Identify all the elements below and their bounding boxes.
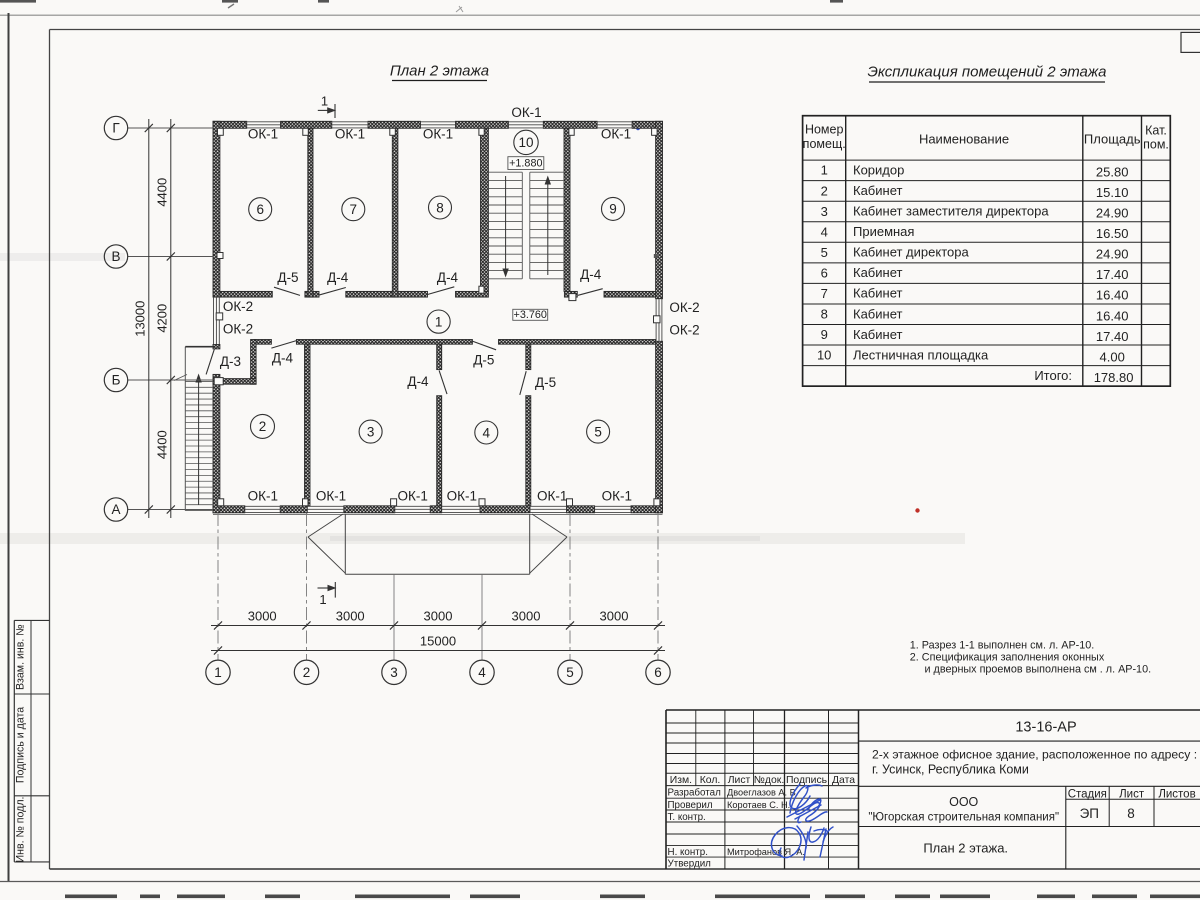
svg-text:4: 4	[478, 665, 486, 680]
svg-text:Кабинет: Кабинет	[853, 327, 902, 342]
svg-text:Д-4: Д-4	[437, 270, 459, 285]
svg-text:1: 1	[214, 665, 222, 680]
svg-text:5: 5	[594, 424, 602, 439]
svg-text:План 2 этажа: План 2 этажа	[390, 63, 489, 80]
svg-text:ОК-2: ОК-2	[669, 323, 699, 338]
svg-text:Кабинет: Кабинет	[853, 265, 902, 280]
svg-text:3000: 3000	[424, 609, 453, 624]
svg-text:Д-4: Д-4	[327, 270, 349, 285]
svg-text:№док.: №док.	[754, 775, 784, 786]
svg-text:Лист: Лист	[1119, 789, 1145, 801]
svg-text:ОК-1: ОК-1	[423, 127, 453, 142]
svg-text:Наименование: Наименование	[919, 132, 1009, 147]
svg-text:16.50: 16.50	[1096, 226, 1129, 241]
svg-text:Площадь: Площадь	[1084, 132, 1141, 147]
svg-text:ОК-1: ОК-1	[248, 489, 278, 504]
svg-text:Подпись и дата: Подпись и дата	[15, 707, 27, 783]
svg-text:пом.: пом.	[1143, 138, 1169, 152]
svg-text:4: 4	[483, 425, 491, 440]
svg-text:7: 7	[821, 286, 828, 301]
svg-text:Подпись: Подпись	[786, 775, 827, 786]
svg-text:8: 8	[436, 200, 444, 215]
svg-text:ОК-1: ОК-1	[398, 489, 428, 504]
svg-text:10: 10	[518, 135, 533, 150]
svg-text:Коридор: Коридор	[853, 162, 904, 177]
svg-text:ОК-2: ОК-2	[669, 300, 699, 315]
svg-text:Экспликация помещений 2 этажа: Экспликация помещений 2 этажа	[867, 64, 1106, 81]
svg-text:Н. контр.: Н. контр.	[668, 847, 708, 858]
svg-text:10: 10	[817, 348, 831, 363]
svg-text:+3.760: +3.760	[514, 309, 547, 321]
svg-text:1: 1	[321, 94, 328, 109]
svg-text:Г: Г	[112, 121, 120, 136]
svg-text:ОК-1: ОК-1	[537, 489, 567, 504]
svg-text:9: 9	[609, 202, 617, 217]
svg-text:План 2 этажа.: План 2 этажа.	[923, 841, 1008, 856]
svg-text:1: 1	[821, 163, 828, 178]
svg-text:Дата: Дата	[832, 775, 855, 786]
svg-text:13000: 13000	[132, 301, 147, 337]
svg-text:Кабинет: Кабинет	[853, 306, 902, 321]
svg-text:Д-5: Д-5	[277, 270, 298, 285]
svg-text:4200: 4200	[155, 304, 170, 333]
svg-text:5: 5	[821, 245, 828, 260]
svg-text:Приемная: Приемная	[853, 224, 914, 239]
svg-text:16.40: 16.40	[1096, 288, 1129, 303]
svg-text:1: 1	[319, 592, 326, 607]
svg-text:Д-3: Д-3	[220, 354, 241, 369]
svg-text:Итого:: Итого:	[1034, 368, 1072, 383]
svg-text:2-х этажное офисное здание, ра: 2-х этажное офисное здание, расположенно…	[872, 748, 1197, 762]
svg-text:А: А	[111, 502, 120, 517]
svg-text:3: 3	[367, 424, 375, 439]
svg-text:2: 2	[821, 183, 828, 198]
svg-text:Д-5: Д-5	[535, 375, 556, 390]
svg-text:Лестничная площадка: Лестничная площадка	[853, 347, 989, 362]
svg-text:Б: Б	[112, 373, 121, 388]
svg-text:6: 6	[821, 265, 828, 280]
svg-text:ООО: ООО	[949, 795, 978, 809]
svg-text:15.10: 15.10	[1096, 185, 1129, 200]
svg-text:Кат.: Кат.	[1145, 124, 1167, 138]
svg-text:4: 4	[821, 224, 828, 239]
svg-text:3000: 3000	[512, 609, 541, 624]
svg-text:17.40: 17.40	[1096, 329, 1129, 344]
svg-text:5: 5	[566, 665, 574, 680]
svg-text:25.80: 25.80	[1096, 164, 1129, 179]
svg-text:ОК-1: ОК-1	[511, 105, 541, 120]
svg-text:Д-4: Д-4	[580, 267, 602, 282]
svg-text:3: 3	[821, 204, 828, 219]
svg-text:Д-4: Д-4	[407, 374, 429, 389]
svg-text:Проверил: Проверил	[668, 800, 713, 811]
svg-text:Кабинет: Кабинет	[853, 183, 902, 198]
svg-text:Кол.: Кол.	[700, 775, 721, 786]
svg-text:3000: 3000	[248, 609, 277, 624]
svg-text:1: 1	[435, 314, 443, 329]
svg-text:17.40: 17.40	[1096, 267, 1129, 282]
svg-text:4.00: 4.00	[1100, 349, 1125, 364]
svg-text:8: 8	[821, 307, 828, 322]
svg-text:178.80: 178.80	[1094, 370, 1134, 385]
svg-text:Кабинет: Кабинет	[853, 286, 902, 301]
svg-text:6: 6	[654, 665, 662, 680]
svg-text:2: 2	[259, 419, 267, 434]
svg-text:помещ.: помещ.	[803, 137, 846, 151]
svg-text:Коротаев С. Н.: Коротаев С. Н.	[727, 800, 790, 810]
svg-text:Кабинет заместителя директора: Кабинет заместителя директора	[853, 204, 1049, 219]
svg-text:ОК-1: ОК-1	[248, 127, 278, 142]
svg-text:Разработал: Разработал	[668, 787, 722, 798]
svg-text:Стадия: Стадия	[1068, 789, 1107, 801]
svg-text:Лист: Лист	[728, 775, 751, 786]
svg-text:3: 3	[390, 665, 398, 680]
svg-text:Д-5: Д-5	[473, 353, 494, 368]
svg-text:ОК-1: ОК-1	[602, 489, 632, 504]
svg-text:3000: 3000	[336, 609, 365, 624]
svg-text:ОК-1: ОК-1	[335, 127, 365, 142]
svg-text:Инв. № подл.: Инв. № подл.	[15, 797, 27, 863]
svg-text:9: 9	[821, 327, 828, 342]
svg-text:Д-4: Д-4	[272, 351, 294, 366]
svg-text:24.90: 24.90	[1096, 247, 1129, 262]
svg-text:2. Спецификация заполнения око: 2. Спецификация заполнения оконных	[910, 652, 1105, 664]
svg-text:3000: 3000	[600, 609, 629, 624]
svg-text:15000: 15000	[420, 634, 456, 649]
svg-text:ОК-2: ОК-2	[223, 299, 253, 314]
svg-text:"Югорская строительная компани: "Югорская строительная компания"	[868, 812, 1059, 824]
svg-text:Номер: Номер	[805, 123, 844, 137]
svg-text:Изм.: Изм.	[670, 775, 692, 786]
svg-text:и дверных проемов выполнена см: и дверных проемов выполнена см . л. АР-1…	[925, 664, 1152, 676]
svg-text:4400: 4400	[155, 178, 170, 207]
svg-text:В: В	[111, 249, 120, 264]
svg-text:6: 6	[256, 202, 264, 217]
svg-text:Двоеглазов А. В.: Двоеглазов А. В.	[727, 787, 798, 797]
svg-text:ЭП: ЭП	[1080, 806, 1099, 821]
svg-text:2: 2	[303, 665, 311, 680]
svg-text:13-16-АР: 13-16-АР	[1015, 720, 1076, 736]
svg-text:ОК-1: ОК-1	[601, 127, 631, 142]
svg-text:Утвердил: Утвердил	[668, 859, 712, 870]
svg-text:Т. контр.: Т. контр.	[668, 812, 706, 823]
svg-text:24.90: 24.90	[1096, 206, 1129, 221]
svg-text:Взам. инв. №: Взам. инв. №	[15, 624, 27, 690]
svg-text:16.40: 16.40	[1096, 308, 1129, 323]
svg-text:Листов: Листов	[1158, 789, 1195, 801]
svg-text:8: 8	[1127, 806, 1135, 821]
svg-text:ОК-1: ОК-1	[447, 489, 477, 504]
svg-text:г. Усинск, Республика Коми: г. Усинск, Республика Коми	[872, 763, 1029, 777]
svg-text:+1.880: +1.880	[509, 158, 542, 170]
svg-text:7: 7	[350, 202, 358, 217]
svg-text:1. Разрез 1-1 выполнен см. л.: 1. Разрез 1-1 выполнен см. л. АР-10.	[910, 640, 1094, 652]
svg-text:4400: 4400	[155, 430, 170, 459]
svg-text:ОК-1: ОК-1	[316, 489, 346, 504]
svg-text:ОК-2: ОК-2	[223, 322, 253, 337]
svg-text:Кабинет директора: Кабинет директора	[853, 245, 969, 260]
